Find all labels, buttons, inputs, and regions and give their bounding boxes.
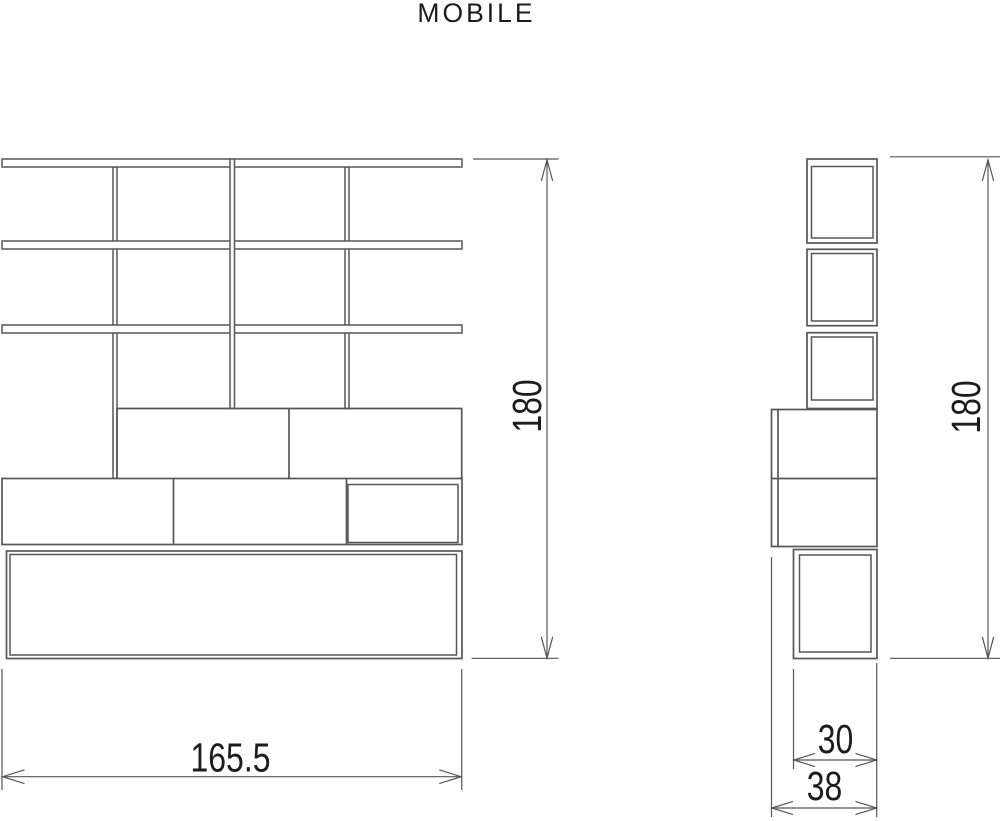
front-base-cabinet-inner — [10, 555, 457, 656]
drawing-sheet: MOBILE — [0, 0, 1000, 821]
dimension-front-width: 165.5 — [2, 669, 462, 790]
dimension-side-height: 180 — [890, 157, 1000, 659]
side-cubby-1-inner — [812, 167, 874, 239]
front-view — [2, 159, 462, 659]
front-center-panel — [230, 159, 235, 409]
overall-depth-value: 38 — [807, 763, 843, 809]
side-base-cabinet-inner — [800, 555, 872, 652]
drawing-title: MOBILE — [417, 0, 535, 28]
front-height-value: 180 — [504, 379, 550, 432]
front-drawer-front — [348, 485, 458, 543]
technical-drawing: MOBILE — [0, 0, 1000, 821]
front-width-value: 165.5 — [191, 735, 271, 781]
front-right-divider — [345, 167, 349, 409]
side-cubby-3-inner — [812, 337, 874, 400]
side-height-value: 180 — [943, 380, 989, 433]
dimension-front-height: 180 — [472, 159, 559, 658]
base-depth-value: 30 — [818, 716, 854, 762]
side-cubby-2-inner — [812, 254, 874, 322]
side-view — [772, 159, 878, 659]
